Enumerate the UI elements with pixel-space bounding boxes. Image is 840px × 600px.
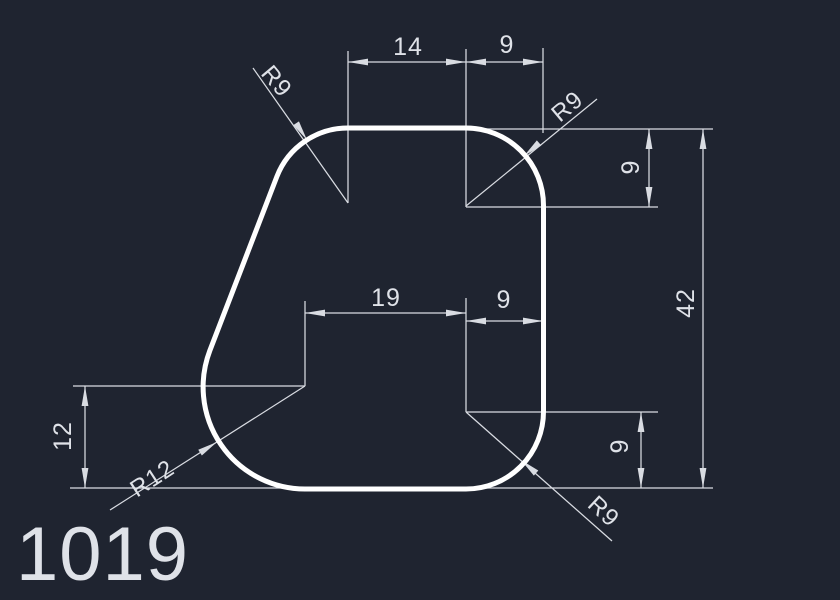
dim-text-mid-left-width: 19 xyxy=(371,284,401,312)
dim-arrow xyxy=(82,386,89,406)
dim-arrow xyxy=(638,468,645,488)
dim-text-right-bottom-height: 9 xyxy=(606,439,634,454)
dim-arrow xyxy=(82,468,89,488)
dim-text-overall-height: 42 xyxy=(672,288,700,318)
radius-label-top-right: R9 xyxy=(546,86,588,128)
radius-label-top-left: R9 xyxy=(255,60,297,102)
dim-arrow xyxy=(700,468,707,488)
dim-arrow xyxy=(446,310,466,317)
dim-arrow xyxy=(523,59,543,66)
dim-arrow xyxy=(700,129,707,149)
leader-arrow xyxy=(198,439,219,455)
cad-drawing-svg: 14 9 9 42 19 9 12 9 R9 R9 R12 R9 1019 xyxy=(0,0,840,600)
dim-text-left-bottom-height: 12 xyxy=(49,421,77,451)
dim-text-right-corner-height: 9 xyxy=(617,160,645,175)
dim-arrow xyxy=(466,59,486,66)
dim-arrow xyxy=(305,310,325,317)
dim-arrow xyxy=(446,59,466,66)
dim-arrow xyxy=(348,59,368,66)
dim-arrow xyxy=(466,318,486,325)
dimension-texts: 14 9 9 42 19 9 12 9 xyxy=(49,31,700,454)
dim-text-mid-right-width: 9 xyxy=(497,286,512,314)
drawing-canvas[interactable]: 14 9 9 42 19 9 12 9 R9 R9 R12 R9 1019 xyxy=(0,0,840,600)
dim-arrow xyxy=(646,129,653,149)
radius-label-bottom-right: R9 xyxy=(582,491,624,533)
dim-text-top-left-width: 14 xyxy=(393,33,423,61)
dim-arrow xyxy=(523,318,543,325)
arrowheads xyxy=(82,59,707,488)
dim-text-top-right-width: 9 xyxy=(500,31,515,59)
dim-arrow xyxy=(646,187,653,207)
dim-arrow xyxy=(638,412,645,432)
part-number-text: 1019 xyxy=(16,512,189,597)
extension-lines xyxy=(70,48,713,488)
